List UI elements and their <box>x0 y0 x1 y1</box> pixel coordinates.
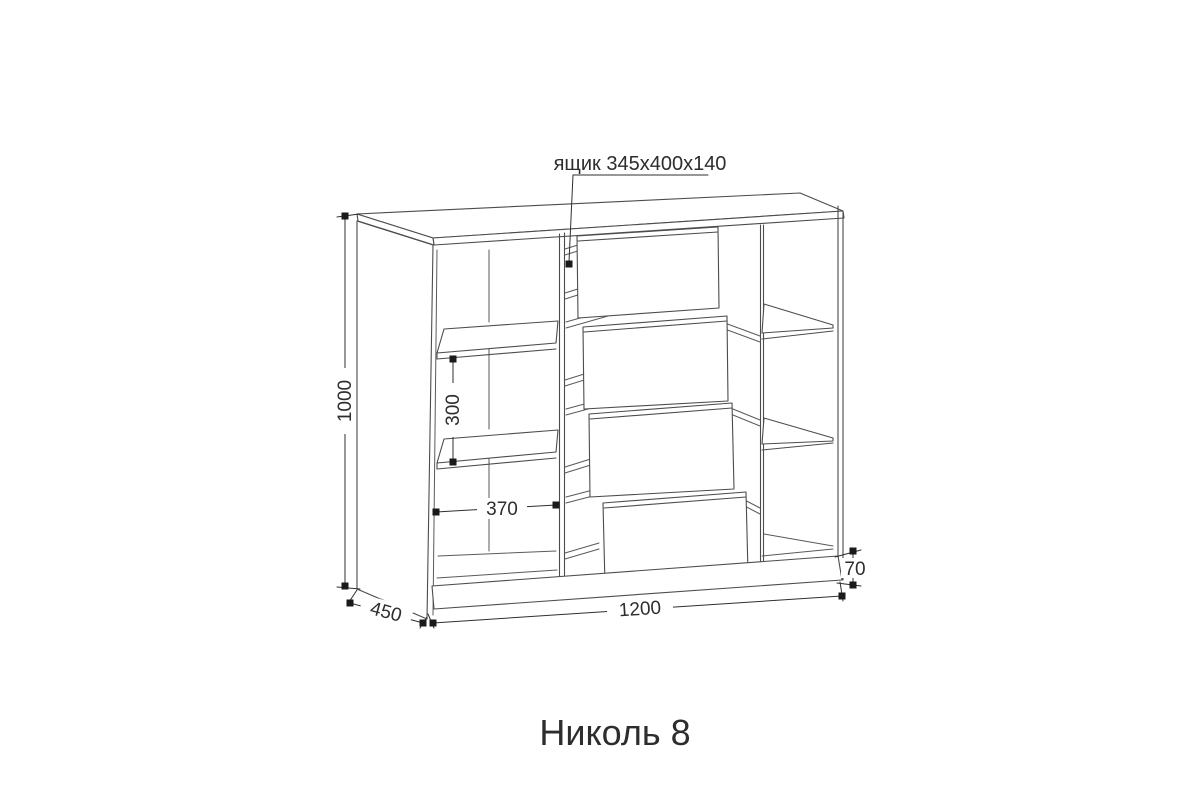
left-side-panel <box>357 221 437 619</box>
product-title: Николь 8 <box>539 712 690 753</box>
left-divider-panel <box>560 233 565 578</box>
right-shelf-lower <box>762 418 833 450</box>
dimension-compartment-width-value: 370 <box>486 499 518 520</box>
dimension-overall-width-value: 1200 <box>618 598 662 622</box>
drawer-size-callout-text: ящик 345х400х140 <box>554 153 727 175</box>
right-divider-panel <box>761 225 764 565</box>
drawer-2 <box>583 316 728 409</box>
technical-drawing-page: 1000 300 370 450 <box>0 0 1200 798</box>
dimension-overall-height-value: 1000 <box>335 380 356 422</box>
right-shelf-upper <box>762 304 833 339</box>
dimension-shelf-gap-value: 300 <box>443 394 464 426</box>
drawer-3 <box>589 403 734 497</box>
right-side-panel <box>838 206 843 580</box>
dimension-overall-height: 1000 <box>332 213 360 590</box>
furniture-diagram: 1000 300 370 450 <box>0 0 1200 798</box>
left-shelf-upper <box>437 321 558 359</box>
drawer-1 <box>577 227 719 318</box>
dimension-compartment-width: 370 <box>433 498 560 520</box>
dimension-plinth-height-value: 70 <box>844 559 865 580</box>
right-compartment-interior <box>762 534 833 556</box>
